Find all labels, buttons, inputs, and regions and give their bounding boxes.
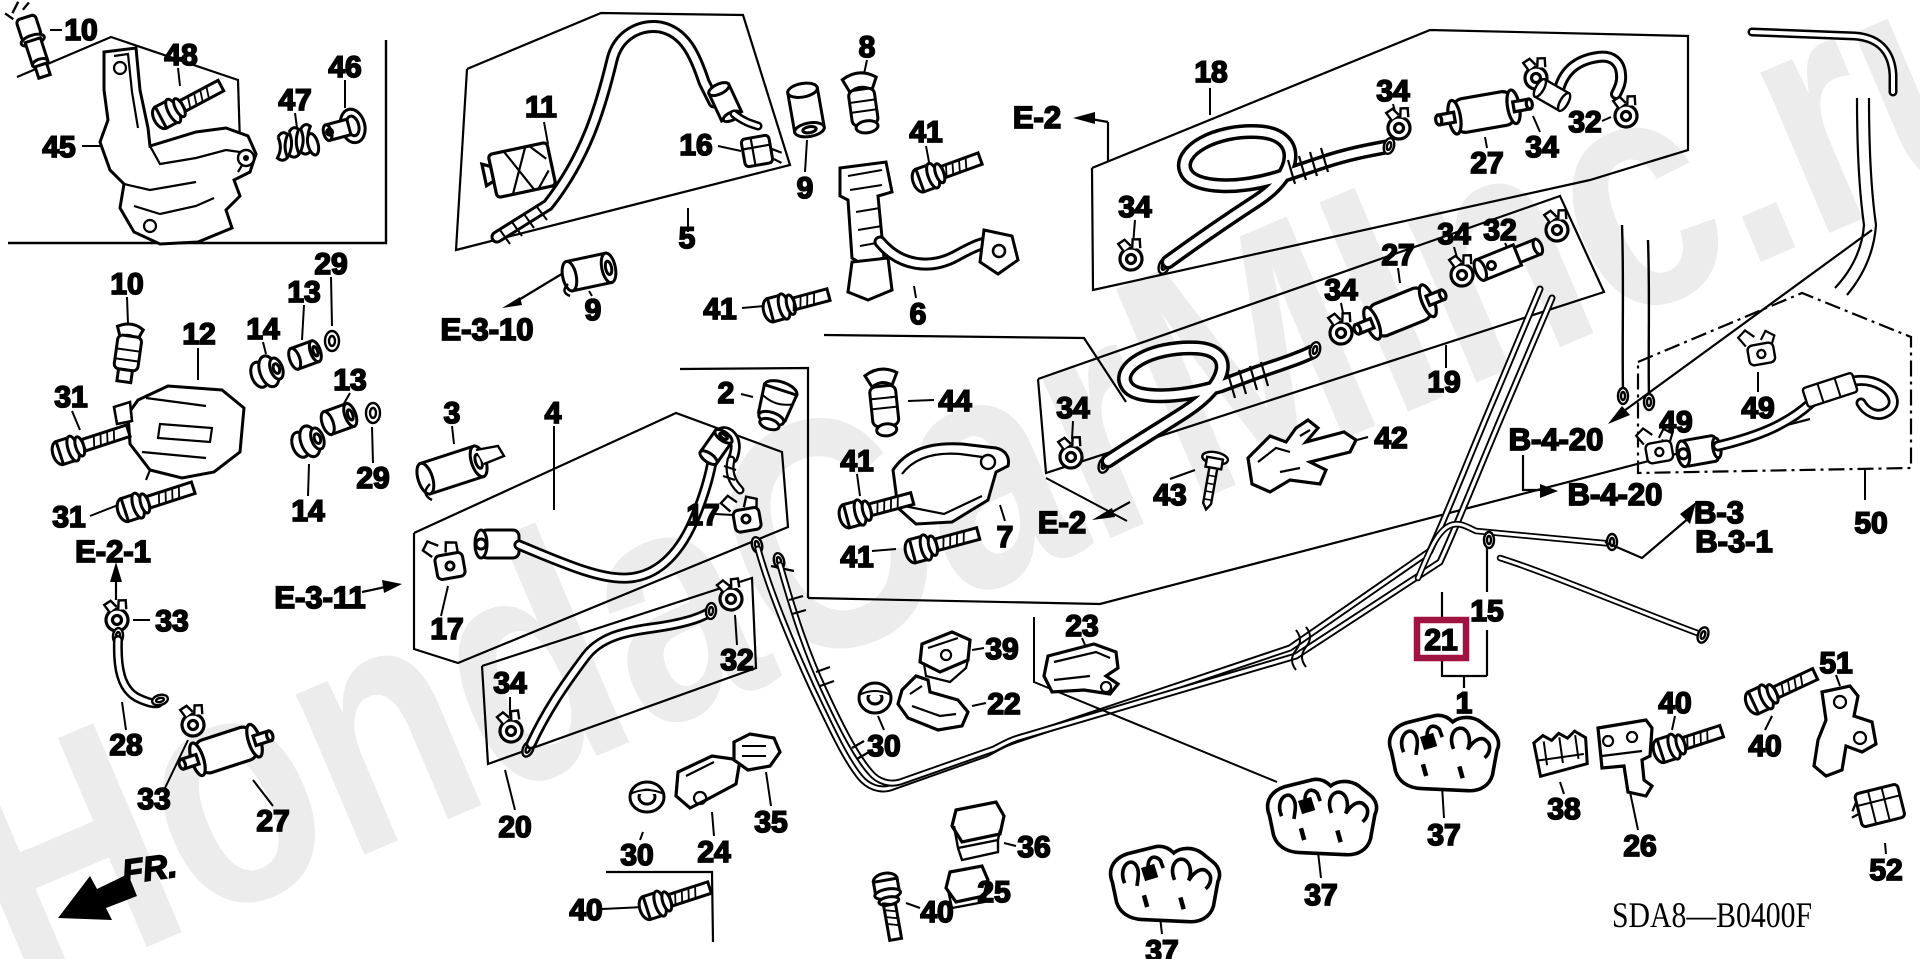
svg-text:34: 34 [1376, 75, 1410, 108]
svg-text:40: 40 [569, 894, 602, 927]
svg-text:28: 28 [109, 729, 142, 762]
svg-text:29: 29 [356, 462, 389, 495]
svg-text:36: 36 [1017, 831, 1050, 864]
svg-text:B-4-20: B-4-20 [1509, 422, 1604, 457]
svg-text:41: 41 [703, 293, 736, 326]
svg-text:40: 40 [1658, 687, 1691, 720]
svg-text:34: 34 [1118, 191, 1152, 224]
svg-text:3: 3 [444, 397, 461, 430]
svg-text:33: 33 [155, 605, 188, 638]
svg-text:4: 4 [545, 397, 562, 430]
svg-text:1: 1 [1456, 687, 1473, 720]
svg-text:12: 12 [182, 318, 215, 351]
svg-text:49: 49 [1659, 406, 1692, 439]
svg-text:E-3-11: E-3-11 [274, 580, 365, 615]
svg-text:16: 16 [679, 129, 712, 162]
svg-text:15: 15 [1470, 595, 1503, 628]
svg-text:E-3-10: E-3-10 [440, 312, 533, 347]
svg-text:17: 17 [430, 613, 463, 646]
svg-text:27: 27 [1381, 239, 1414, 272]
svg-text:26: 26 [1623, 830, 1656, 863]
svg-text:10: 10 [64, 14, 97, 47]
svg-text:34: 34 [493, 667, 527, 700]
svg-text:13: 13 [333, 364, 366, 397]
svg-text:31: 31 [54, 381, 87, 414]
svg-text:46: 46 [328, 51, 361, 84]
svg-text:33: 33 [137, 783, 170, 816]
svg-text:9: 9 [585, 294, 602, 327]
svg-text:11: 11 [525, 91, 557, 124]
svg-text:31: 31 [52, 501, 85, 534]
svg-text:34: 34 [1324, 274, 1358, 307]
svg-text:14: 14 [291, 495, 325, 528]
svg-text:35: 35 [754, 806, 787, 839]
svg-text:21: 21 [1424, 624, 1457, 657]
svg-text:E-2: E-2 [1013, 100, 1061, 135]
svg-text:E-2: E-2 [1038, 505, 1086, 540]
svg-text:52: 52 [1869, 854, 1902, 887]
svg-text:50: 50 [1854, 507, 1887, 540]
svg-text:41: 41 [840, 541, 873, 574]
svg-text:43: 43 [1153, 479, 1186, 512]
svg-text:34: 34 [1056, 392, 1090, 425]
svg-text:37: 37 [1145, 935, 1178, 959]
svg-text:48: 48 [164, 39, 197, 72]
svg-text:FR.: FR. [120, 847, 180, 892]
svg-text:41: 41 [909, 116, 942, 149]
svg-text:49: 49 [1741, 392, 1774, 425]
svg-text:32: 32 [720, 644, 753, 677]
svg-text:8: 8 [859, 31, 876, 64]
svg-text:40: 40 [920, 896, 953, 929]
svg-text:7: 7 [997, 521, 1014, 554]
svg-text:5: 5 [679, 222, 696, 255]
svg-text:18: 18 [1194, 56, 1227, 89]
svg-text:32: 32 [1483, 214, 1516, 247]
svg-text:42: 42 [1374, 422, 1407, 455]
svg-text:30: 30 [867, 730, 900, 763]
svg-text:38: 38 [1547, 793, 1580, 826]
svg-text:37: 37 [1427, 819, 1460, 852]
svg-text:45: 45 [42, 131, 75, 164]
svg-text:34: 34 [1437, 218, 1471, 251]
svg-text:6: 6 [910, 298, 927, 331]
svg-text:23: 23 [1065, 610, 1098, 643]
svg-text:B-3-1: B-3-1 [1695, 524, 1773, 559]
svg-text:27: 27 [256, 805, 289, 838]
svg-text:13: 13 [287, 276, 320, 309]
svg-text:14: 14 [246, 313, 280, 346]
svg-text:44: 44 [938, 385, 972, 418]
svg-text:9: 9 [797, 172, 814, 205]
svg-text:34: 34 [1525, 131, 1559, 164]
svg-text:27: 27 [1470, 147, 1503, 180]
svg-text:24: 24 [697, 836, 731, 869]
svg-text:2: 2 [718, 377, 735, 410]
svg-text:37: 37 [1304, 879, 1337, 912]
svg-text:40: 40 [1748, 730, 1781, 763]
svg-text:22: 22 [987, 688, 1020, 721]
svg-text:51: 51 [1819, 647, 1852, 680]
svg-text:25: 25 [977, 876, 1010, 909]
svg-text:41: 41 [840, 445, 873, 478]
svg-text:39: 39 [985, 633, 1018, 666]
svg-text:47: 47 [278, 84, 311, 117]
svg-text:E-2-1: E-2-1 [75, 534, 151, 569]
svg-text:10: 10 [110, 268, 143, 301]
svg-text:32: 32 [1568, 106, 1601, 139]
svg-text:19: 19 [1427, 366, 1460, 399]
svg-text:17: 17 [686, 499, 719, 532]
svg-text:20: 20 [498, 811, 531, 844]
svg-text:B-4-20: B-4-20 [1568, 477, 1663, 512]
svg-text:SDA8—B0400F: SDA8—B0400F [1612, 895, 1812, 935]
svg-text:30: 30 [620, 839, 653, 872]
